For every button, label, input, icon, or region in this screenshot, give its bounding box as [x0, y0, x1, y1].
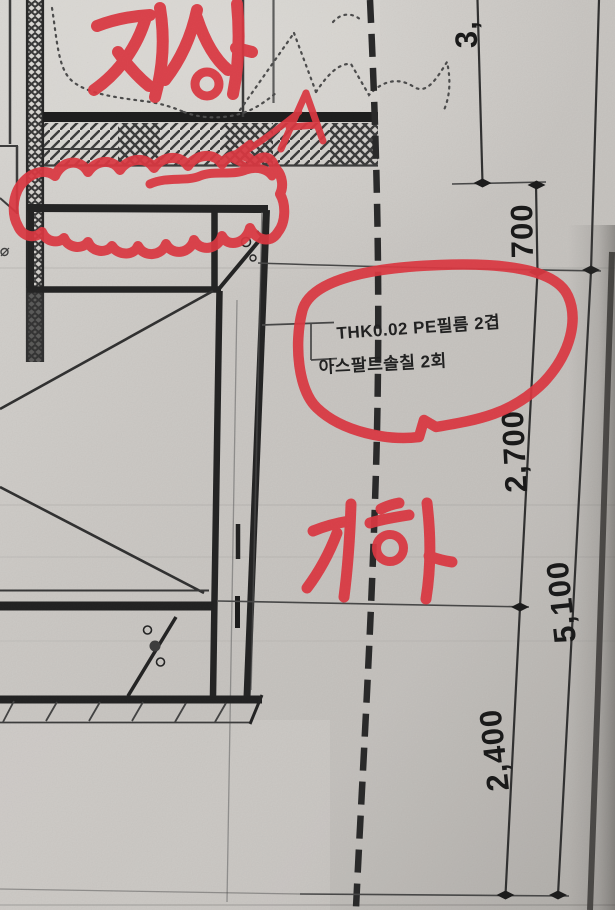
photo-grain-overlay	[0, 0, 615, 910]
drawing-canvas: THK0.02 PE필름 2겹 아스팔트솔칠 2회 3, 700 2,700 5…	[0, 0, 615, 910]
blueprint-photo: THK0.02 PE필름 2겹 아스팔트솔칠 2회 3, 700 2,700 5…	[0, 0, 615, 910]
